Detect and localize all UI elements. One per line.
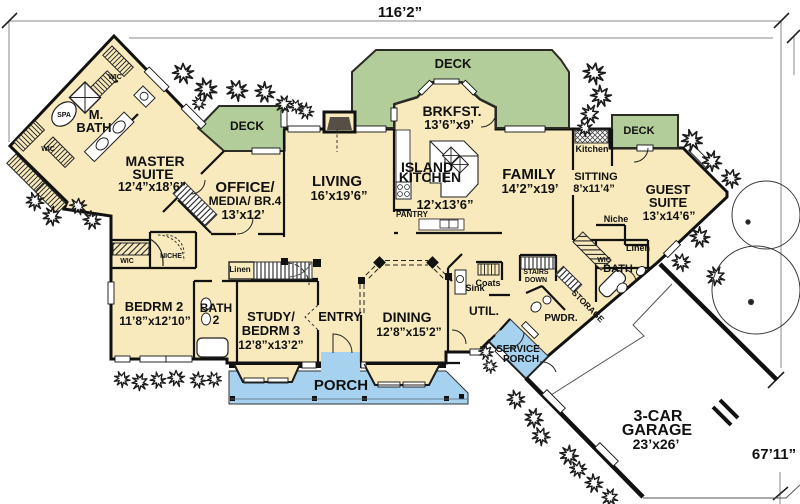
svg-text:DECK: DECK: [435, 56, 472, 71]
svg-text:STAIRS: STAIRS: [523, 269, 548, 276]
svg-text:DINING: DINING: [383, 309, 432, 325]
svg-text:23’x26’: 23’x26’: [633, 436, 680, 452]
svg-text:Coats: Coats: [475, 278, 500, 288]
svg-text:SITTING: SITTING: [574, 171, 617, 183]
svg-text:WIC: WIC: [108, 74, 122, 81]
svg-text:WIC: WIC: [120, 258, 134, 265]
svg-text:Kitchen: Kitchen: [575, 144, 608, 154]
svg-text:STUDY/: STUDY/: [247, 309, 295, 324]
svg-text:DECK: DECK: [623, 125, 654, 137]
svg-text:Linen: Linen: [626, 243, 650, 253]
svg-text:12’8”x15’2”: 12’8”x15’2”: [376, 325, 441, 339]
svg-text:14’2”x19’: 14’2”x19’: [501, 181, 558, 196]
svg-text:DECK: DECK: [230, 119, 264, 133]
svg-text:12’4”x18’6”: 12’4”x18’6”: [118, 180, 186, 194]
svg-text:16’x19’6”: 16’x19’6”: [310, 188, 367, 203]
svg-text:13’x12’: 13’x12’: [221, 207, 264, 222]
svg-text:MEDIA/ BR.4: MEDIA/ BR.4: [209, 194, 282, 208]
svg-text:8’x11’4”: 8’x11’4”: [573, 183, 615, 195]
svg-text:BEDRM 3: BEDRM 3: [242, 323, 301, 338]
svg-text:PWDR.: PWDR.: [544, 313, 578, 324]
svg-text:KITCHEN: KITCHEN: [399, 169, 461, 185]
svg-text:PORCH: PORCH: [314, 377, 368, 394]
svg-text:BATH: BATH: [76, 120, 111, 135]
svg-text:NICHE: NICHE: [160, 253, 182, 260]
svg-text:13’x14’6”: 13’x14’6”: [643, 209, 696, 223]
svg-text:PANTRY: PANTRY: [396, 210, 429, 219]
svg-text:11’8”x12’10”: 11’8”x12’10”: [119, 314, 190, 328]
svg-text:13’6”x9’: 13’6”x9’: [424, 117, 474, 132]
svg-text:UTIL.: UTIL.: [469, 304, 499, 318]
svg-text:Linen: Linen: [229, 265, 250, 274]
svg-text:12’8”x13’2”: 12’8”x13’2”: [238, 338, 303, 352]
svg-text:67’11”: 67’11”: [752, 446, 796, 463]
svg-text:Niche: Niche: [604, 214, 629, 224]
svg-text:ENTRY: ENTRY: [318, 309, 362, 324]
svg-text:BATH: BATH: [603, 263, 633, 275]
svg-text:DOWN: DOWN: [525, 277, 547, 284]
svg-text:2: 2: [213, 313, 220, 327]
svg-text:BEDRM 2: BEDRM 2: [125, 299, 184, 314]
svg-text:SUITE: SUITE: [649, 195, 688, 210]
svg-text:PORCH: PORCH: [503, 354, 539, 365]
svg-text:WIC: WIC: [41, 146, 55, 153]
svg-text:SPA: SPA: [57, 112, 71, 119]
svg-text:116’2”: 116’2”: [378, 4, 422, 21]
